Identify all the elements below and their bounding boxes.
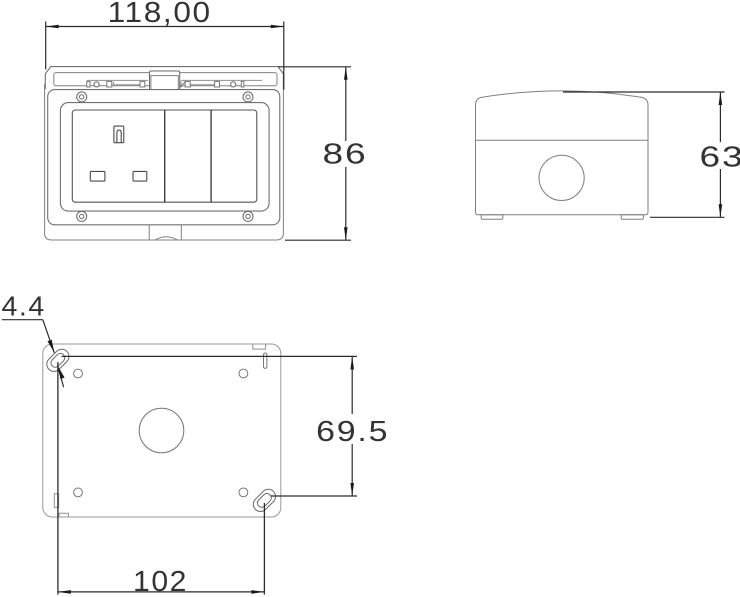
svg-text:63: 63 [699,141,740,173]
svg-text:4.4: 4.4 [2,290,46,322]
svg-text:86: 86 [322,138,367,170]
svg-text:118,00: 118,00 [108,0,212,29]
svg-text:69.5: 69.5 [316,414,389,447]
svg-text:102: 102 [133,566,188,597]
